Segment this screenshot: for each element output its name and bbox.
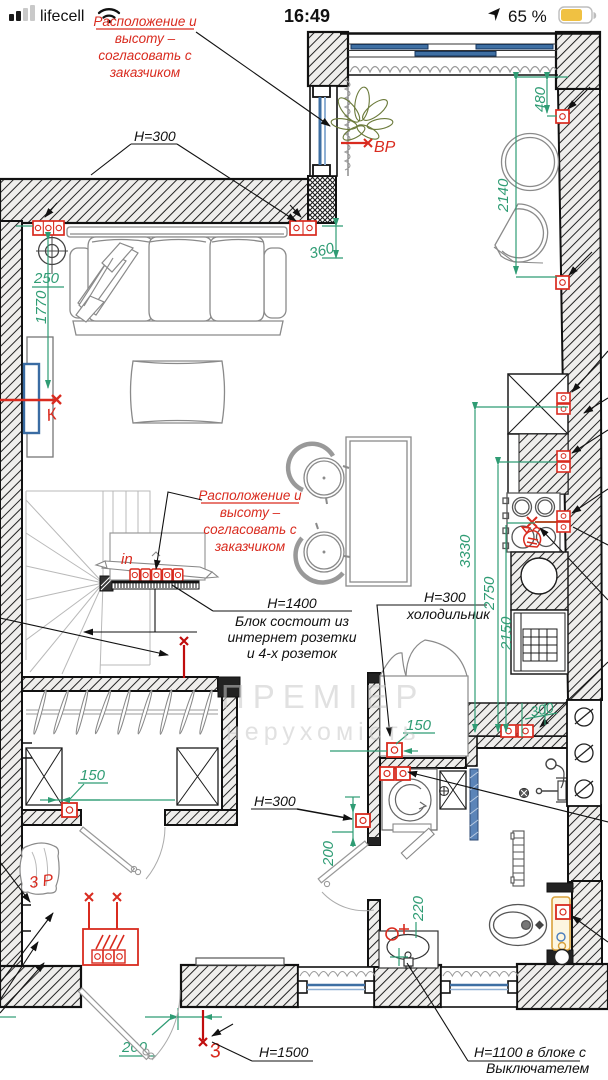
svg-text:Расположение и: Расположение и [198, 488, 302, 503]
svg-text:и 4-х розеток: и 4-х розеток [247, 645, 339, 661]
svg-text:заказчиком: заказчиком [109, 65, 180, 80]
svg-text:Расположение и: Расположение и [93, 14, 197, 29]
svg-text:холодильник: холодильник [406, 606, 491, 622]
svg-text:480: 480 [532, 86, 549, 112]
svg-text:360: 360 [308, 239, 337, 262]
svg-text:2150: 2150 [498, 616, 515, 651]
svg-text:lifecell: lifecell [40, 8, 84, 25]
svg-text:ПРЕМІЕР: ПРЕМІЕР [221, 678, 425, 715]
svg-text:65 %: 65 % [508, 7, 547, 26]
svg-text:150: 150 [80, 767, 106, 784]
svg-text:нерухомість: нерухомість [226, 718, 421, 746]
svg-text:высоту –: высоту – [220, 505, 281, 520]
svg-text:1770: 1770 [33, 290, 50, 324]
svg-text:250: 250 [33, 270, 60, 287]
svg-text:Блок состоит из: Блок состоит из [235, 613, 349, 629]
svg-text:2750: 2750 [481, 576, 498, 611]
svg-text:Н=300: Н=300 [134, 128, 176, 144]
svg-text:Выключателем: Выключателем [486, 1060, 590, 1076]
svg-text:ВР: ВР [374, 139, 396, 156]
svg-text:220: 220 [410, 895, 427, 922]
svg-text:3330: 3330 [457, 534, 474, 568]
svg-text:Н=1500: Н=1500 [259, 1044, 309, 1060]
svg-text:16:49: 16:49 [284, 6, 330, 26]
svg-text:Н=300: Н=300 [254, 793, 296, 809]
svg-text:согласовать с: согласовать с [203, 522, 296, 537]
svg-text:2140: 2140 [495, 178, 512, 213]
svg-text:интернет розетки: интернет розетки [227, 629, 356, 645]
svg-text:Н=1100 в блоке с: Н=1100 в блоке с [474, 1044, 586, 1060]
svg-text:200: 200 [320, 840, 337, 867]
svg-text:высоту –: высоту – [115, 31, 176, 46]
svg-text:in: in [121, 551, 133, 568]
svg-text:заказчиком: заказчиком [214, 539, 285, 554]
svg-text:3 Р: 3 Р [28, 872, 54, 892]
svg-text:согласовать с: согласовать с [98, 48, 191, 63]
svg-text:Н=300: Н=300 [424, 589, 466, 605]
svg-text:Н=1400: Н=1400 [267, 595, 317, 611]
